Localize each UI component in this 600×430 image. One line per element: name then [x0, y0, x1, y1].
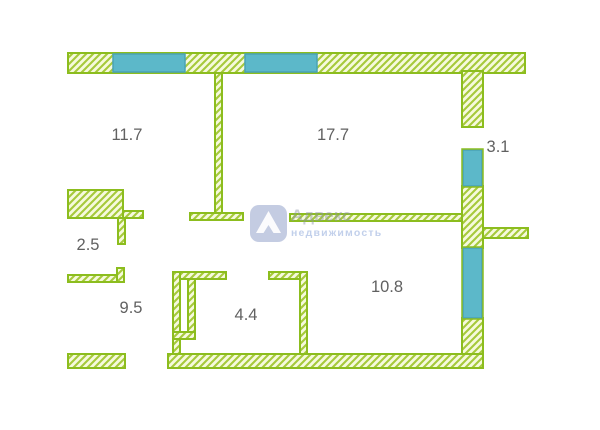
- room-label-3-1: 3.1: [487, 138, 510, 156]
- window-top-center: [245, 54, 317, 72]
- room-labels: 11.7 17.7 3.1 2.5 9.5 4.4 10.8: [77, 126, 510, 324]
- floor-plan: Адвекс недвижимость 11.7 17.7 3.1 2.5 9.…: [0, 0, 600, 430]
- wall-divider-vertical: [215, 73, 222, 213]
- wall-left-block-arm: [123, 211, 143, 218]
- wall-stub-top-right: [462, 71, 483, 127]
- room-label-10-8: 10.8: [371, 278, 403, 296]
- watermark-subtitle: недвижимость: [291, 227, 382, 239]
- wall-left-thin-stub: [117, 268, 124, 282]
- wall-mid-vertical-arm: [269, 272, 300, 279]
- floor-plan-drawing: Адвекс недвижимость 11.7 17.7 3.1 2.5 9.…: [0, 0, 600, 430]
- watermark-title: Адвекс: [291, 206, 352, 225]
- room-label-11-7: 11.7: [112, 126, 143, 144]
- wall-right-strip-mid: [462, 186, 483, 248]
- wall-jamb-left: [173, 272, 180, 354]
- wall-bottom-main: [168, 354, 483, 368]
- wall-mid-right: [483, 228, 528, 238]
- wall-jamb-inner: [188, 279, 195, 332]
- wall-left-block-stub: [118, 218, 125, 244]
- wall-left-block: [68, 190, 123, 218]
- wall-bottom-left: [68, 354, 125, 368]
- window-right-lower: [463, 248, 482, 318]
- watermark: Адвекс недвижимость: [250, 205, 382, 242]
- wall-divider-tbar: [190, 213, 243, 220]
- room-label-17-7: 17.7: [317, 126, 349, 144]
- wall-mid-vertical: [300, 272, 307, 354]
- window-right-upper: [463, 150, 482, 186]
- room-label-4-4: 4.4: [235, 306, 258, 324]
- window-top-left: [113, 54, 185, 72]
- room-label-9-5: 9.5: [120, 299, 143, 317]
- wall-jamb-connector: [173, 332, 195, 339]
- wall-left-thin: [68, 275, 123, 282]
- room-label-2-5: 2.5: [77, 236, 100, 254]
